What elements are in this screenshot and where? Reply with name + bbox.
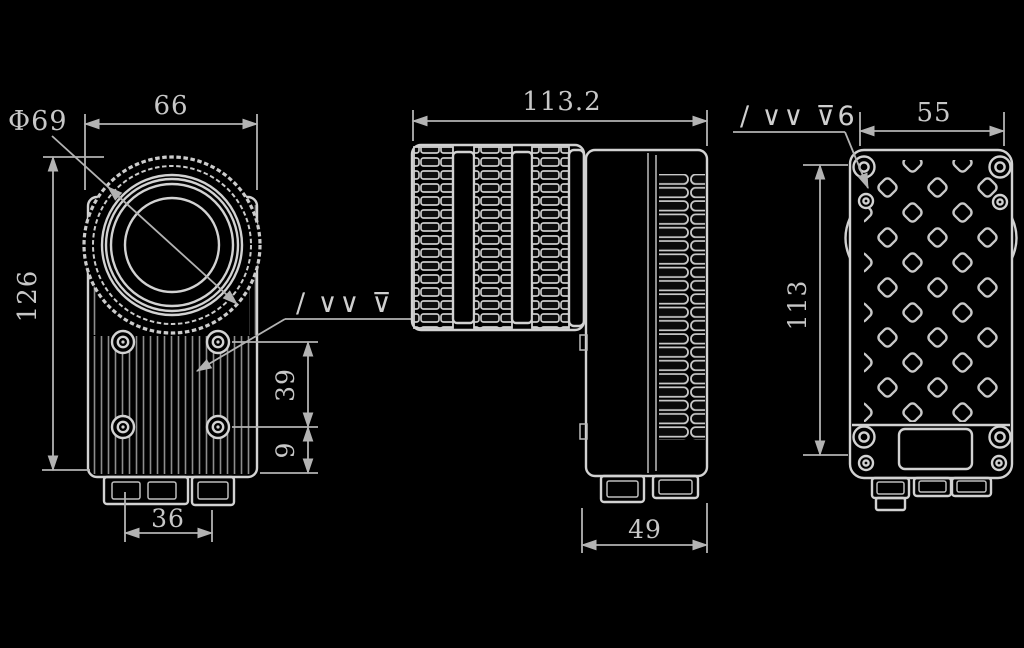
screw-top-right — [207, 331, 229, 353]
screw-bottom-left — [112, 416, 134, 438]
side-body-fins — [659, 174, 705, 440]
dim-label-front-height: 126 — [13, 270, 43, 323]
dim-label-depth: 113.2 — [522, 87, 601, 117]
dim-label-back-width: 55 — [916, 98, 951, 128]
barrel-knurl-band-2 — [474, 147, 512, 328]
back-screw-top-right — [990, 157, 1011, 178]
back-screw-bottom-right — [990, 427, 1011, 448]
back-screw-small-bottom-right — [992, 456, 1006, 470]
barrel-knurl-band-3 — [532, 147, 569, 328]
technical-drawing-canvas: Φ69 66 126 — [0, 0, 1024, 648]
screw-bottom-right — [207, 416, 229, 438]
dim-label-back-height: 113 — [783, 280, 812, 331]
front-body-ridges — [91, 336, 254, 474]
screw-top-left — [112, 331, 134, 353]
back-screw-bottom-left — [854, 427, 875, 448]
dim-label-front-width: 66 — [153, 91, 188, 121]
surface-finish-back-label: ∕ ∨∨ ⊽6 — [740, 101, 857, 132]
back-screw-small-bottom-left — [859, 456, 873, 470]
barrel-knurl-band-1 — [414, 147, 453, 328]
side-lens-barrel — [412, 145, 584, 330]
dim-label-hole-offset: 9 — [271, 442, 300, 459]
surface-finish-front-label: ∕ ∨∨ ⊽ — [296, 288, 394, 319]
dim-label-mount-width: 36 — [151, 504, 185, 533]
back-screw-small-top-right — [993, 195, 1007, 209]
dim-label-lens-diameter: Φ69 — [8, 106, 68, 137]
back-vent-grid — [864, 160, 1000, 422]
dim-label-hole-spacing: 39 — [271, 368, 300, 402]
back-screw-small-top-left — [859, 194, 873, 208]
dim-label-body-depth: 49 — [628, 515, 662, 544]
side-body — [580, 150, 707, 476]
